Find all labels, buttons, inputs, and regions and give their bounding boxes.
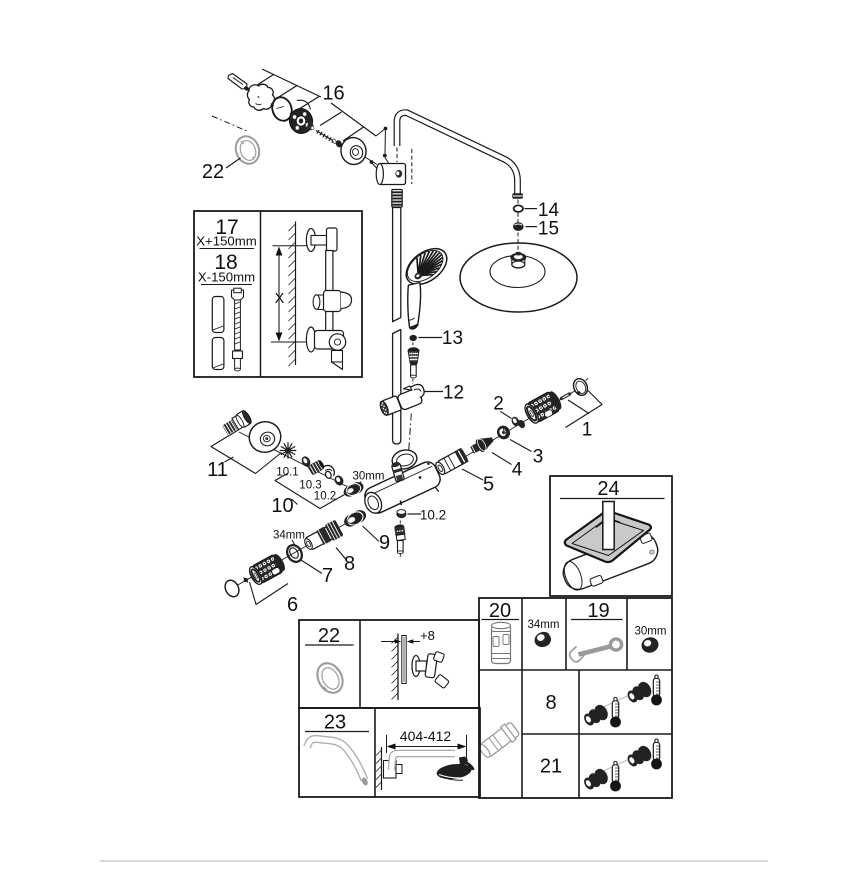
svg-text:16: 16 xyxy=(322,83,344,105)
svg-text:24: 24 xyxy=(597,478,619,500)
svg-text:1: 1 xyxy=(582,420,593,441)
svg-text:X+150mm: X+150mm xyxy=(196,234,256,249)
svg-text:3: 3 xyxy=(533,447,544,468)
svg-text:404-412: 404-412 xyxy=(400,728,452,744)
svg-text:X-150mm: X-150mm xyxy=(198,270,255,285)
svg-text:5: 5 xyxy=(483,474,494,496)
svg-text:10: 10 xyxy=(271,495,293,517)
svg-text:30mm: 30mm xyxy=(635,626,667,638)
svg-text:34mm: 34mm xyxy=(273,530,305,542)
svg-text:10.1: 10.1 xyxy=(276,467,298,479)
svg-text:8: 8 xyxy=(344,553,355,575)
svg-text:10.2: 10.2 xyxy=(420,508,446,523)
svg-text:20: 20 xyxy=(489,600,511,622)
svg-text:23: 23 xyxy=(324,712,346,734)
svg-text:19: 19 xyxy=(587,600,609,622)
svg-text:34mm: 34mm xyxy=(528,619,560,631)
svg-text:11: 11 xyxy=(207,459,228,481)
svg-text:22: 22 xyxy=(318,625,340,647)
svg-text:22: 22 xyxy=(202,161,224,183)
svg-text:7: 7 xyxy=(322,565,333,587)
svg-text:30mm: 30mm xyxy=(353,471,385,483)
svg-text:9: 9 xyxy=(379,532,390,554)
svg-text:12: 12 xyxy=(443,383,464,404)
svg-text:+8: +8 xyxy=(420,628,435,643)
svg-text:15: 15 xyxy=(538,219,559,240)
svg-text:21: 21 xyxy=(540,756,562,778)
svg-text:2: 2 xyxy=(493,394,504,415)
svg-text:6: 6 xyxy=(287,594,298,616)
svg-text:4: 4 xyxy=(512,460,523,481)
svg-text:8: 8 xyxy=(545,692,556,714)
svg-text:13: 13 xyxy=(442,328,463,349)
svg-text:X: X xyxy=(275,291,285,307)
